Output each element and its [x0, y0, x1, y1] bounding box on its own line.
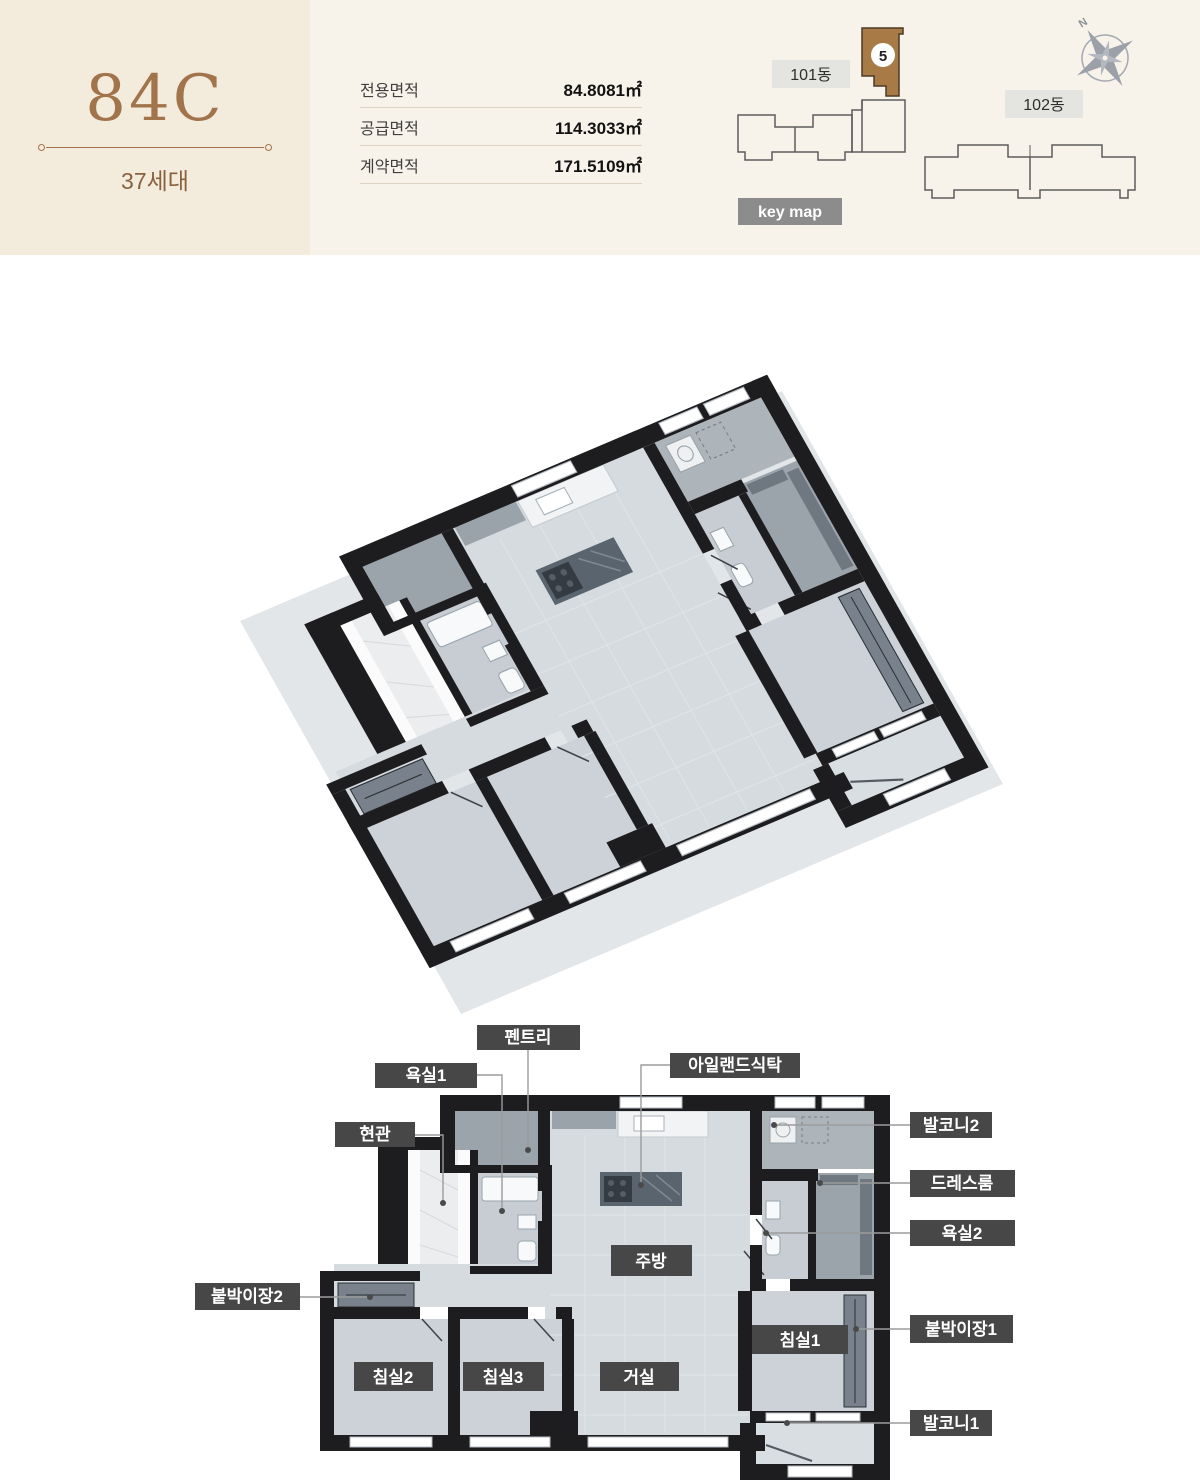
callout-island: 아일랜드식탁	[670, 1053, 800, 1078]
title-divider	[46, 147, 264, 148]
area-value: 114.3033㎡	[555, 114, 642, 139]
unit-code: 84C	[0, 62, 310, 136]
callout-balcony1: 발코니1	[910, 1410, 992, 1436]
callout-bath1: 욕실1	[375, 1063, 477, 1088]
area-label: 계약면적	[360, 153, 419, 177]
building-101-outline	[738, 100, 905, 160]
callout-island-label: 아일랜드식탁	[688, 1056, 782, 1075]
keymap-badge-label: key map	[758, 204, 822, 221]
building-102-outline	[925, 145, 1135, 198]
area-table: 전용면적 84.8081㎡ 공급면적 114.3033㎡ 계약면적 171.51…	[360, 70, 642, 184]
floorplan-2d: 펜트리 욕실1 아일랜드식탁 현관 붙박이장2 발코니2	[180, 1015, 1060, 1483]
room-label-living: 거실	[600, 1362, 679, 1391]
room-living-label: 거실	[623, 1368, 654, 1387]
callout-entry-label: 현관	[359, 1125, 391, 1144]
callout-balcony2-label: 발코니2	[923, 1116, 979, 1135]
plan-canvas: 펜트리 욕실1 아일랜드식탁 현관 붙박이장2 발코니2	[0, 255, 1200, 1483]
building-102-label: 102동	[1023, 97, 1064, 114]
table-row: 공급면적 114.3033㎡	[360, 108, 642, 146]
callout-closet1-label: 붙박이장1	[925, 1320, 997, 1339]
room-bed3-label: 침실3	[483, 1367, 524, 1387]
compass-icon: N	[1052, 1, 1150, 104]
callout-pantry-label: 펜트리	[505, 1028, 552, 1047]
callout-bath2-label: 욕실2	[942, 1224, 983, 1243]
households-count: 37세대	[0, 162, 310, 196]
room-label-bed2: 침실2	[354, 1362, 433, 1391]
room-kitchen-label: 주방	[635, 1252, 667, 1271]
compass-north-label: N	[1077, 16, 1090, 30]
callout-entry: 현관	[335, 1122, 415, 1147]
callout-bath2: 욕실2	[910, 1220, 1015, 1246]
unit-number: 5	[879, 48, 887, 65]
area-value: 171.5109㎡	[554, 152, 642, 177]
callout-balcony2: 발코니2	[910, 1112, 992, 1138]
table-row: 전용면적 84.8081㎡	[360, 70, 642, 108]
building-101-label: 101동	[790, 67, 831, 84]
callout-pantry: 펜트리	[477, 1025, 580, 1050]
header: 84C 37세대 전용면적 84.8081㎡ 공급면적 114.3033㎡ 계약…	[0, 0, 1200, 255]
key-map: 5 101동 102동 key map	[700, 0, 1200, 255]
floorplan-3d	[120, 290, 1120, 1015]
header-info-panel: 전용면적 84.8081㎡ 공급면적 114.3033㎡ 계약면적 171.51…	[310, 0, 1200, 255]
callout-dress-label: 드레스룸	[931, 1174, 994, 1193]
plan2d-geometry	[320, 1095, 890, 1480]
area-label: 전용면적	[360, 77, 419, 101]
callout-dress: 드레스룸	[910, 1170, 1015, 1197]
callout-closet1: 붙박이장1	[910, 1315, 1013, 1343]
room-label-kitchen: 주방	[611, 1245, 692, 1276]
area-label: 공급면적	[360, 115, 419, 139]
callout-closet2: 붙박이장2	[195, 1283, 300, 1310]
area-value: 84.8081㎡	[564, 76, 642, 101]
callout-bath1-label: 욕실1	[406, 1066, 447, 1085]
room-label-bed3: 침실3	[463, 1362, 544, 1391]
floorplan-page: 84C 37세대 전용면적 84.8081㎡ 공급면적 114.3033㎡ 계약…	[0, 0, 1200, 1483]
room-bed1-label: 침실1	[780, 1330, 821, 1350]
table-row: 계약면적 171.5109㎡	[360, 146, 642, 184]
room-bed2-label: 침실2	[373, 1367, 414, 1387]
callout-closet2-label: 붙박이장2	[211, 1287, 283, 1306]
room-label-bed1: 침실1	[752, 1325, 848, 1354]
unit-title-panel: 84C 37세대	[0, 0, 310, 255]
callout-balcony1-label: 발코니1	[923, 1414, 979, 1433]
